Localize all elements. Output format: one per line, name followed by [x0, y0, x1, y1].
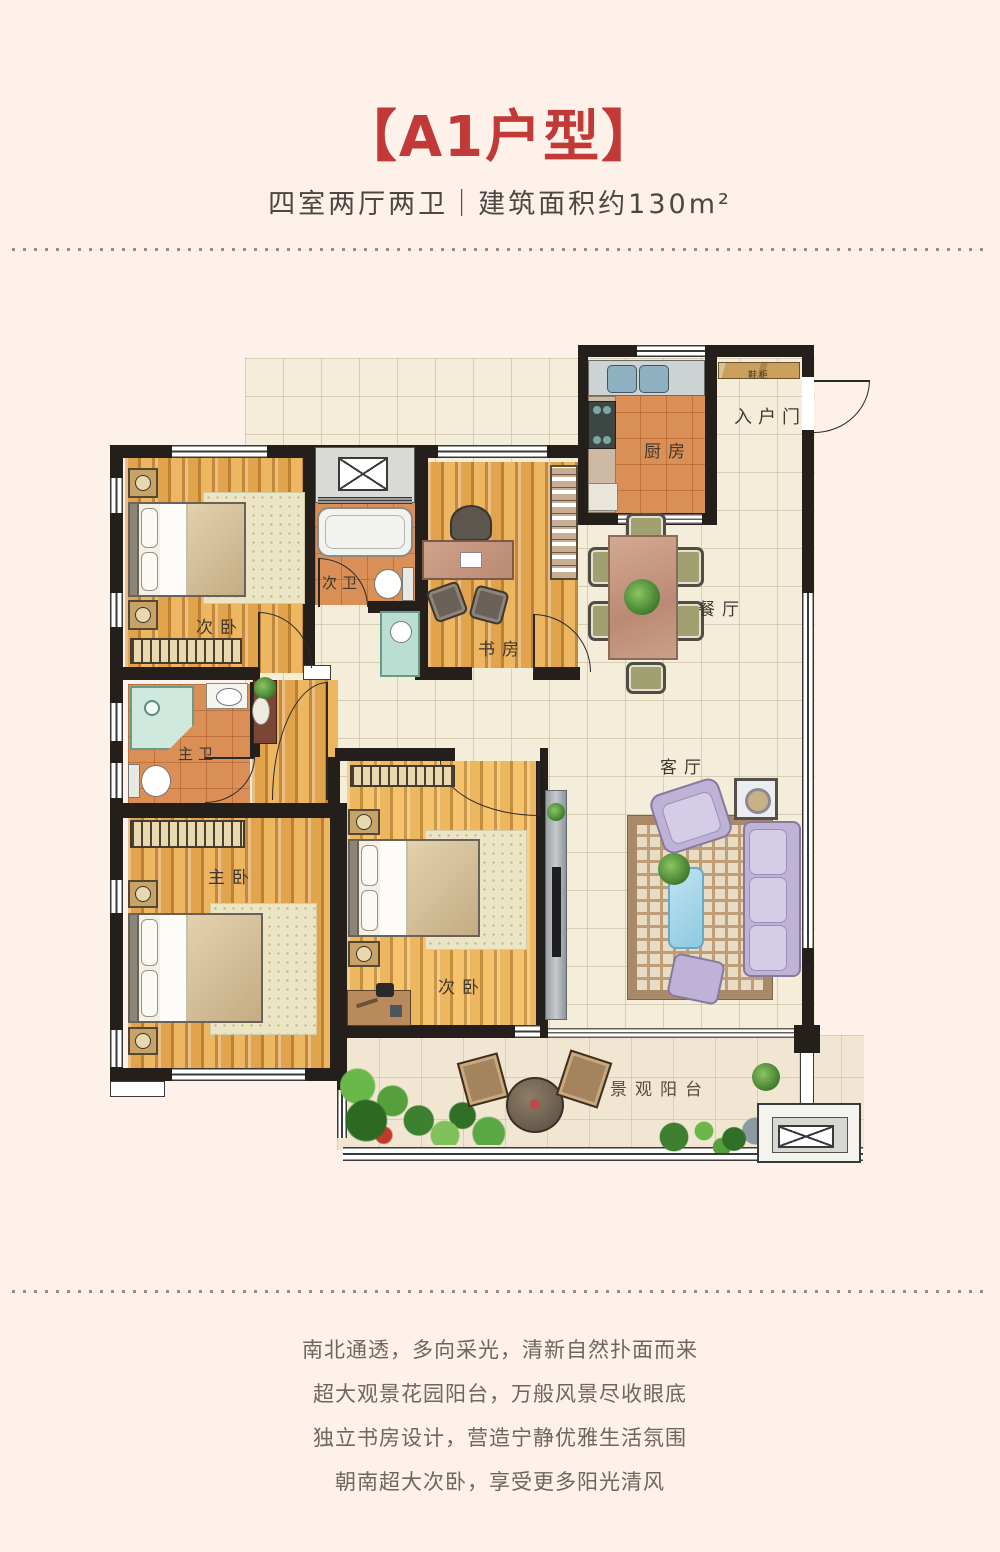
wall-right-entry: [802, 357, 814, 377]
vanity-cabinet: [380, 611, 420, 677]
shaft-window-line: [318, 497, 412, 504]
window-study: [438, 445, 547, 458]
description-block: 南北通透，多向采光，清新自然扑面而来 超大观景花园阳台，万般风景尽收眼底 独立书…: [0, 1334, 1000, 1510]
shower-drain: [144, 700, 160, 716]
toilet-bath-second: [372, 563, 414, 603]
sink-basin: [607, 365, 637, 393]
bed-headboard: [130, 504, 139, 595]
wall-right-end-block: [794, 1025, 820, 1053]
side-table-decor: [745, 788, 771, 814]
balcony-sliding-door: [548, 1028, 794, 1038]
duct-shaft-x-icon: [338, 457, 388, 491]
bath-master-counter: [206, 683, 248, 709]
table-centerpiece-plant: [624, 579, 660, 615]
room-label-entry: 入户门: [734, 403, 806, 429]
room-label-bath-master: 主卫: [178, 743, 218, 764]
door-arc-entry: [814, 380, 870, 433]
nightstand: [128, 1027, 158, 1055]
wardrobe-bedroom-bottom: [350, 765, 455, 787]
room-label-study: 书房: [478, 635, 526, 660]
window-left-6: [110, 1030, 123, 1067]
balcony-tree: [752, 1063, 780, 1091]
bed-bedroom-top: [128, 502, 246, 597]
room-label-bath-second: 次卫: [322, 572, 362, 593]
balcony-table-flowers: [530, 1099, 540, 1109]
window-sill-master: [110, 1081, 165, 1097]
wall-hall-bedroom-bottom: [335, 748, 455, 761]
bedroom-desk: [347, 990, 411, 1026]
nightstand: [128, 880, 158, 908]
bed-sheet: [160, 504, 188, 595]
vanity-basin: [390, 621, 412, 643]
description-line: 朝南超大次卧，享受更多阳光清风: [0, 1466, 1000, 1496]
bed-bedroom-bottom: [348, 839, 480, 937]
room-label-living: 客厅: [660, 753, 708, 778]
sofa-cushion: [749, 925, 787, 971]
window-living-east: [802, 593, 814, 948]
description-line: 独立书房设计，营造宁静优雅生活氛围: [0, 1422, 1000, 1452]
window-left-2: [110, 593, 123, 627]
room-label-kitchen: 厨房: [644, 437, 692, 462]
page-subtitle: 四室两厅两卫｜建筑面积约130m²: [0, 182, 1000, 221]
window-left-1: [110, 478, 123, 513]
ac-unit-x-icon: [778, 1125, 834, 1148]
wardrobe-bedroom-top: [130, 638, 242, 664]
bookshelf: [550, 465, 578, 580]
desk-tool: [356, 998, 378, 1009]
balcony-plants-right: [650, 1113, 770, 1153]
sofa-cushion: [749, 877, 787, 923]
dining-chair: [626, 662, 666, 694]
shoe-cabinet-label: 鞋柜: [748, 371, 770, 381]
wall-right-upper: [802, 430, 814, 593]
window-bedroom-top: [172, 445, 267, 458]
wall-hall-bedroom-stub: [540, 748, 548, 761]
sofa: [743, 821, 801, 977]
sofa-cushion: [749, 829, 787, 875]
sink-basin: [639, 365, 669, 393]
wardrobe-master: [130, 820, 245, 848]
bed-pillows: [139, 504, 160, 595]
nightstand: [128, 468, 158, 498]
window-left-3: [110, 703, 123, 741]
nightstand: [128, 600, 158, 630]
shoe-cabinet: 鞋柜: [718, 362, 800, 379]
divider-top: [12, 248, 988, 251]
description-line: 南北通透，多向采光，清新自然扑面而来: [0, 1334, 1000, 1364]
nightstand: [348, 809, 380, 835]
bed-quilt: [188, 504, 244, 595]
bathtub-inner: [325, 515, 405, 549]
study-desk: [422, 540, 514, 580]
bathtub: [317, 507, 413, 557]
toilet-bath-master: [128, 762, 174, 798]
wall-master-bedroom2: [330, 803, 347, 1068]
floorplan: 次卧 次卫 书房: [110, 335, 870, 1165]
kitchen-cabinet: [588, 483, 618, 511]
camera-icon: [376, 983, 394, 997]
coffee-table-plant: [658, 853, 690, 885]
window-kitchen: [637, 345, 705, 357]
tv-wall-plant: [547, 803, 565, 821]
wall-study-bottom-left: [415, 667, 472, 680]
room-label-balcony: 景观阳台: [610, 1075, 710, 1100]
stand-vase: [252, 697, 270, 725]
side-table: [734, 778, 778, 820]
wall-bedroom-top-bottom: [110, 667, 260, 680]
window-left-4: [110, 763, 123, 798]
wall-bath-master-south: [110, 803, 330, 818]
page-title: 【A1户型】: [0, 92, 1000, 173]
armchair-cushion: [660, 790, 722, 846]
desk-chair: [450, 505, 492, 541]
room-label-bedroom-top: 次卧: [196, 613, 244, 638]
kitchen-counter-top: [588, 360, 705, 396]
stove: [588, 401, 616, 449]
wall-kitchen-right: [705, 357, 717, 515]
bath-master-basin: [216, 688, 242, 706]
bed-master: [128, 913, 263, 1023]
nightstand: [348, 941, 380, 967]
description-line: 超大观景花园阳台，万般风景尽收眼底: [0, 1378, 1000, 1408]
ac-platform-connector: [800, 1053, 814, 1103]
window-master-south: [172, 1068, 305, 1081]
balcony-table: [506, 1077, 564, 1133]
stand-plant: [254, 677, 276, 699]
desk-laptop: [460, 552, 482, 568]
page: 【A1户型】 四室两厅两卫｜建筑面积约130m²: [0, 0, 1000, 1552]
window-left-5: [110, 880, 123, 913]
wall-kitchen-left: [578, 345, 588, 515]
divider-bottom: [12, 1290, 988, 1293]
room-label-bedroom-master: 主卧: [208, 863, 256, 888]
room-label-bedroom-bottom: 次卧: [438, 973, 486, 998]
desk-item: [390, 1005, 402, 1017]
tv-icon: [552, 867, 561, 957]
room-label-dining: 餐厅: [698, 595, 746, 620]
window-bedroom-bottom: [515, 1025, 540, 1038]
